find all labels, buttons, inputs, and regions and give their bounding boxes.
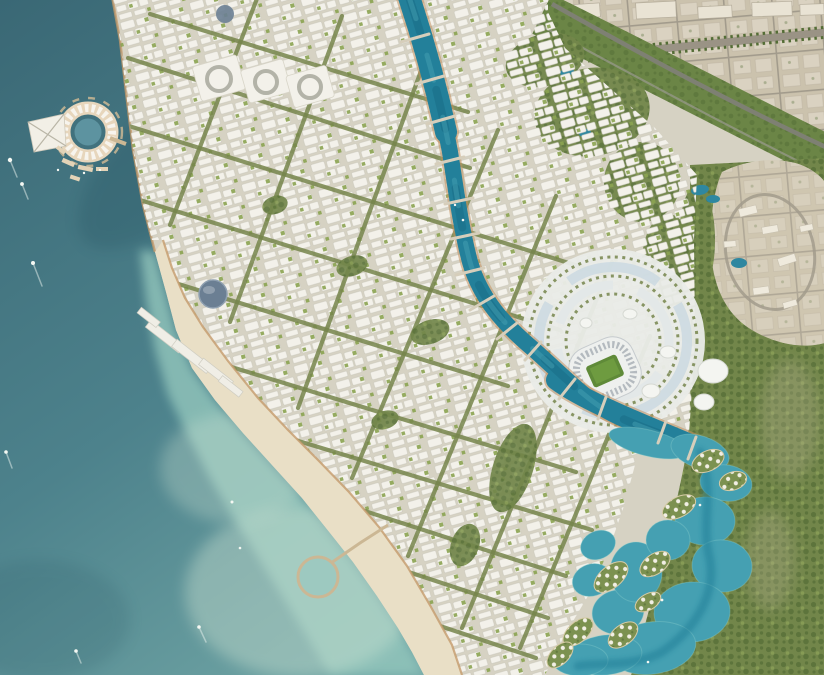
screenshot-stage: Coastal city masterplan — aerial render … — [0, 0, 824, 675]
blue-dome-landmark-small — [216, 5, 234, 23]
desert-building-block — [800, 4, 824, 16]
boat — [197, 625, 201, 629]
marina-inner-basin — [75, 119, 102, 146]
desert-building-block — [752, 1, 792, 16]
boat — [31, 261, 35, 265]
masterplan-aerial-render: Coastal city masterplan — aerial render … — [0, 0, 824, 675]
dome-venue — [623, 309, 637, 319]
boat — [99, 169, 101, 171]
blue-dome-landmark — [199, 280, 227, 308]
boat — [20, 182, 24, 186]
dome-venue — [660, 346, 676, 358]
boat — [661, 599, 664, 602]
boat — [699, 504, 702, 507]
desert-building-block — [698, 5, 733, 19]
boat — [4, 450, 8, 454]
boat — [57, 169, 59, 171]
sandy-clearing — [760, 360, 820, 480]
dome-venue — [694, 394, 714, 410]
pond — [706, 195, 720, 203]
pond — [731, 258, 747, 268]
desert-building-block — [636, 1, 677, 19]
boat — [462, 219, 465, 222]
boat — [647, 661, 650, 664]
boat — [74, 649, 78, 653]
boat — [8, 158, 12, 162]
marina-dock — [96, 167, 108, 171]
dome-venue — [698, 359, 728, 383]
village-building — [724, 240, 736, 247]
dome-highlight — [203, 286, 215, 294]
boat — [454, 204, 456, 206]
sandy-clearing — [745, 510, 795, 610]
dome-venue — [642, 384, 660, 398]
dome-venue — [580, 318, 592, 328]
boat — [231, 501, 234, 504]
boat — [239, 547, 242, 550]
boat — [83, 172, 85, 174]
